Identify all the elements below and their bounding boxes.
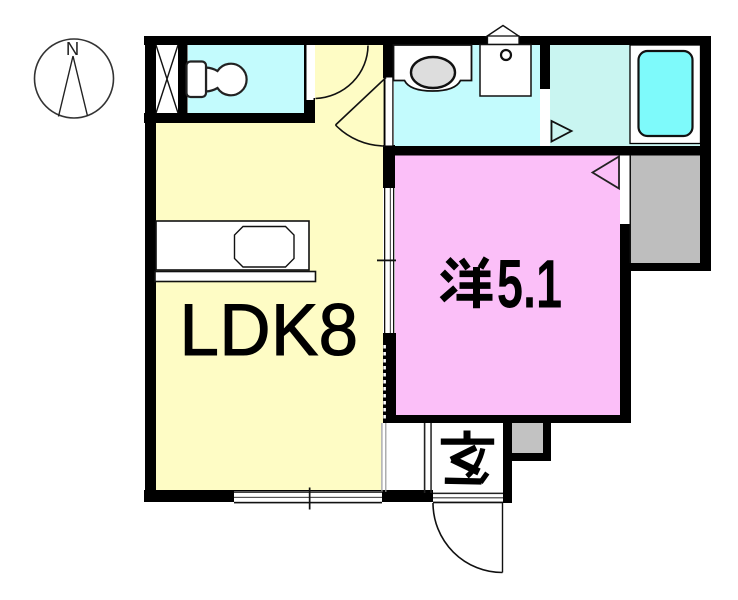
svg-text:5.1: 5.1 [497, 246, 562, 323]
svg-text:LDK8: LDK8 [179, 290, 358, 371]
svg-text:N: N [66, 38, 79, 59]
